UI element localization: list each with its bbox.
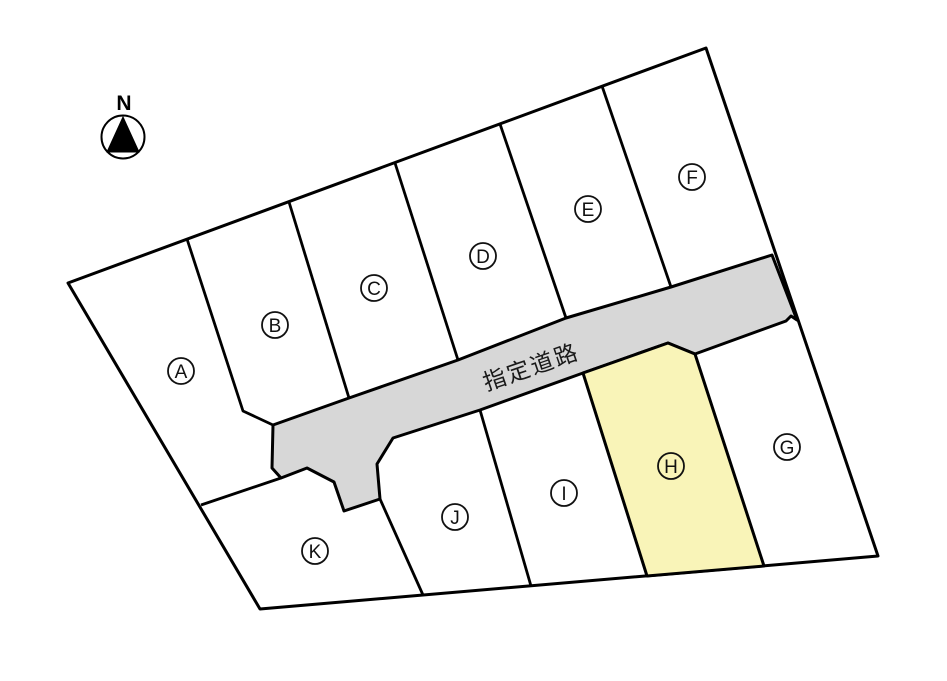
lot-label-C-text: C	[367, 279, 381, 300]
lot-label-D-text: D	[476, 247, 490, 268]
north-arrow-triangle	[107, 117, 139, 152]
lot-label-E-text: E	[582, 200, 595, 221]
lot-label-H-text: H	[664, 457, 678, 478]
north-arrow: N	[102, 92, 145, 159]
site-plan: 指定道路 A B C D E F G	[0, 0, 947, 681]
site-plan-svg: 指定道路 A B C D E F G	[0, 0, 947, 681]
lot-label-J-text: J	[450, 508, 460, 529]
lot-label-B-text: B	[269, 316, 282, 337]
lot-label-G-text: G	[780, 438, 795, 459]
lot-label-I-text: I	[561, 484, 566, 505]
north-label: N	[116, 92, 131, 115]
lot-label-K-text: K	[309, 542, 322, 563]
lot-label-F-text: F	[686, 168, 698, 189]
lot-label-A-text: A	[175, 362, 188, 383]
